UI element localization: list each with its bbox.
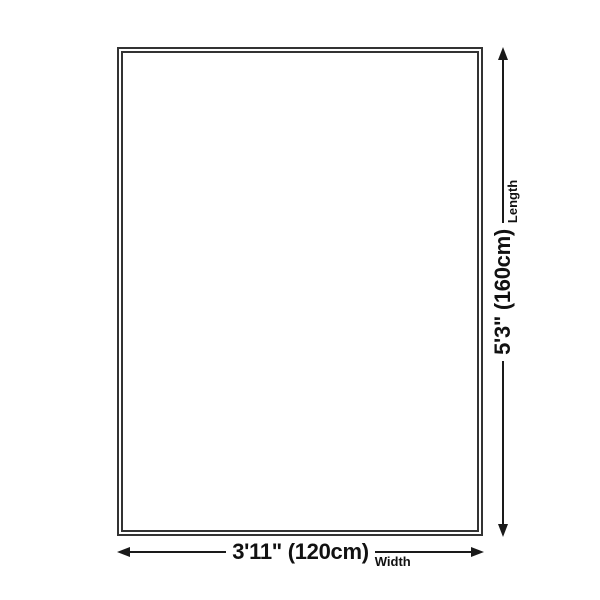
arrow-right-icon: [471, 547, 484, 557]
width-label: Width: [375, 555, 411, 568]
length-label: Length: [506, 180, 519, 223]
length-dimension: 5'3" (160cm) Length: [490, 47, 516, 537]
length-dimension-line-upper: Length: [502, 60, 504, 223]
product-outline: [117, 47, 483, 536]
product-outline-inner-border: [121, 51, 479, 532]
arrow-down-icon: [498, 524, 508, 537]
arrow-left-icon: [117, 547, 130, 557]
width-dimension-line-right: Width: [375, 551, 471, 553]
length-value: 5'3" (160cm): [492, 229, 514, 355]
arrow-up-icon: [498, 47, 508, 60]
width-dimension: 3'11" (120cm) Width: [117, 539, 484, 565]
size-diagram: 5'3" (160cm) Length 3'11" (120cm) Width: [0, 0, 600, 600]
width-dimension-line-left: [130, 551, 226, 553]
length-dimension-line-lower: [502, 361, 504, 524]
width-value: 3'11" (120cm): [232, 541, 369, 563]
